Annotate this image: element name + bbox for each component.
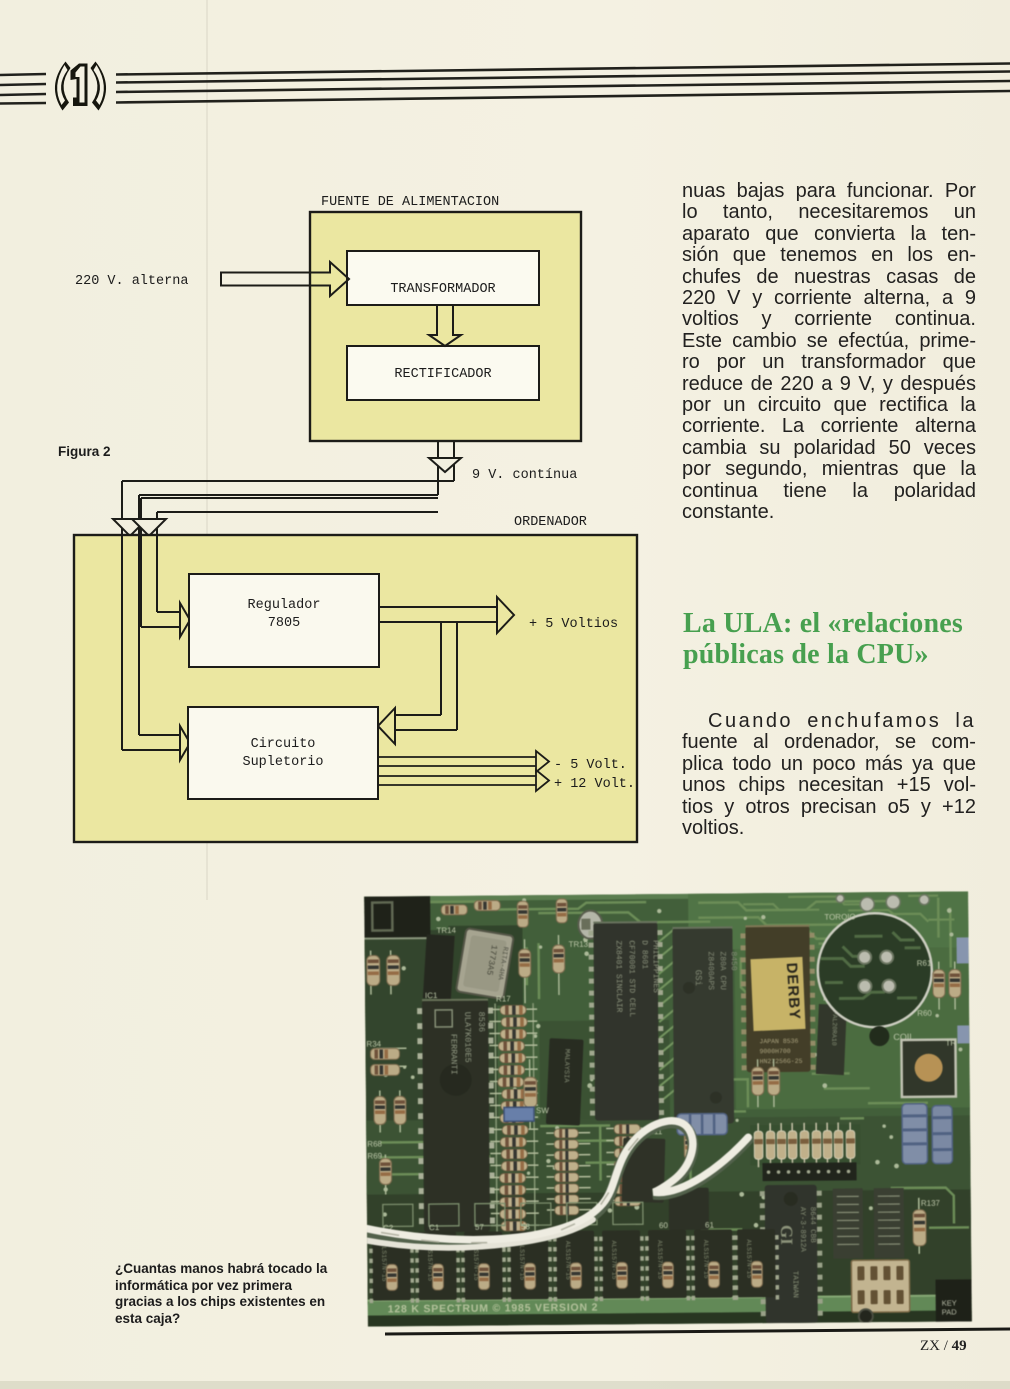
svg-text:Supletorio: Supletorio [242,755,323,770]
svg-text:7805: 7805 [268,616,300,631]
svg-text:- 5 Volt.: - 5 Volt. [554,758,627,773]
svg-text:RECTIFICADOR: RECTIFICADOR [394,367,491,382]
svg-text:220 V. alterna: 220 V. alterna [75,274,188,289]
svg-text:TRANSFORMADOR: TRANSFORMADOR [390,282,495,297]
svg-text:+ 12 Volt.: + 12 Volt. [554,777,635,792]
svg-text:9 V. contínua: 9 V. contínua [472,468,577,483]
svg-text:Circuito: Circuito [251,737,316,752]
svg-text:FUENTE DE ALIMENTACION: FUENTE DE ALIMENTACION [321,195,499,210]
svg-text:ORDENADOR: ORDENADOR [514,515,587,530]
svg-text:+ 5 Voltios: + 5 Voltios [529,617,618,632]
svg-text:Regulador: Regulador [248,598,321,613]
